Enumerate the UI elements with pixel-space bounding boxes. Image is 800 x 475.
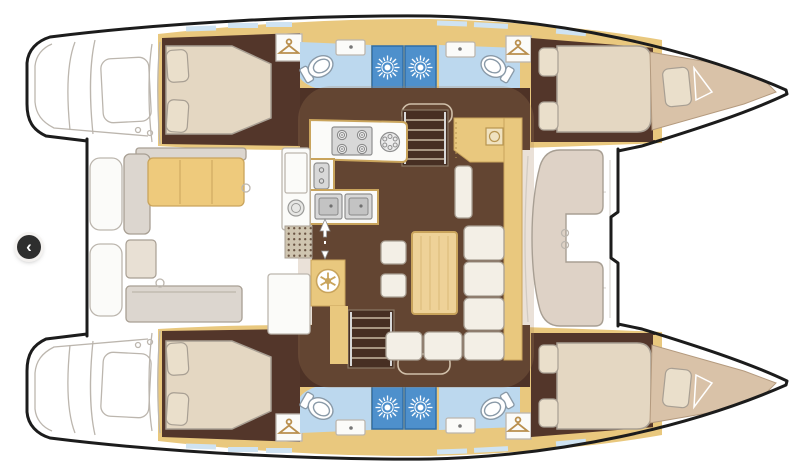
forward-head <box>405 42 520 90</box>
pillow <box>166 99 189 132</box>
forward-cockpit <box>525 150 610 326</box>
bench-cushion <box>148 158 244 206</box>
aft-head <box>298 40 403 92</box>
aft-head <box>298 383 403 435</box>
faucet <box>458 47 462 51</box>
stool <box>381 241 406 264</box>
sofa-cushion <box>386 332 422 360</box>
pillow <box>539 345 558 373</box>
double-bed <box>557 343 651 429</box>
shower-sunburst-icon <box>409 56 433 80</box>
pillow <box>166 342 189 375</box>
c-shaped-lounge <box>532 150 603 326</box>
salon <box>282 86 534 388</box>
sofa-seat <box>455 166 472 218</box>
shower-sunburst-icon <box>376 396 400 420</box>
double-bed <box>557 46 651 132</box>
pillow <box>166 49 189 82</box>
forward-crossbeam <box>611 149 618 326</box>
forward-head <box>405 385 520 433</box>
forward-hanging-locker <box>506 413 531 439</box>
pillow <box>539 102 558 130</box>
shower-sunburst-icon <box>376 56 400 80</box>
forward-cabin <box>531 38 660 142</box>
sofa-cushion <box>464 332 504 360</box>
cockpit-bench-forward <box>124 148 246 234</box>
salon-forward-wall <box>504 118 522 360</box>
sofa-cushion <box>424 332 462 360</box>
dining-table <box>412 232 457 314</box>
stern-step <box>90 158 122 230</box>
fridge-column <box>282 148 310 230</box>
stool <box>381 274 406 297</box>
stove-burner-icon <box>337 144 346 153</box>
cockpit-table <box>126 286 242 322</box>
stove-burner-icon <box>337 130 346 139</box>
oven-icon <box>314 163 329 189</box>
forepeak-cushion <box>662 368 692 409</box>
threshold-mat <box>285 226 312 258</box>
round-hob-icon <box>381 133 400 152</box>
nav-sink <box>486 128 503 145</box>
boat-floorplan-image: ‹ <box>0 0 800 475</box>
companionway-starboard <box>402 110 448 166</box>
shower-sunburst-icon <box>409 396 433 420</box>
aft-hanging-locker <box>276 34 302 61</box>
pillow <box>166 392 189 425</box>
transom-steps-starboard <box>35 40 160 144</box>
forepeak-cushion <box>662 67 692 108</box>
faucet <box>458 424 462 428</box>
stern-step <box>90 244 122 316</box>
pillow <box>539 48 558 76</box>
cockpit-seat <box>126 240 156 278</box>
sofa-cushion <box>464 298 504 330</box>
pillow <box>539 399 558 427</box>
faucet <box>349 45 353 49</box>
faucet <box>349 426 353 430</box>
aft-hanging-locker <box>276 414 302 441</box>
floor-plan <box>0 0 800 475</box>
sliding-door-leaf <box>268 274 310 334</box>
sofa-cushion <box>464 226 504 260</box>
stove-burner-icon <box>357 130 366 139</box>
forward-hanging-locker <box>506 36 531 62</box>
sofa-cushion <box>464 262 504 296</box>
transom-steps-port <box>35 331 160 435</box>
chevron-left-icon: ‹ <box>26 238 32 255</box>
stove-burner-icon <box>357 144 366 153</box>
carousel-prev-button[interactable]: ‹ <box>17 235 41 259</box>
forward-cabin <box>531 333 660 437</box>
